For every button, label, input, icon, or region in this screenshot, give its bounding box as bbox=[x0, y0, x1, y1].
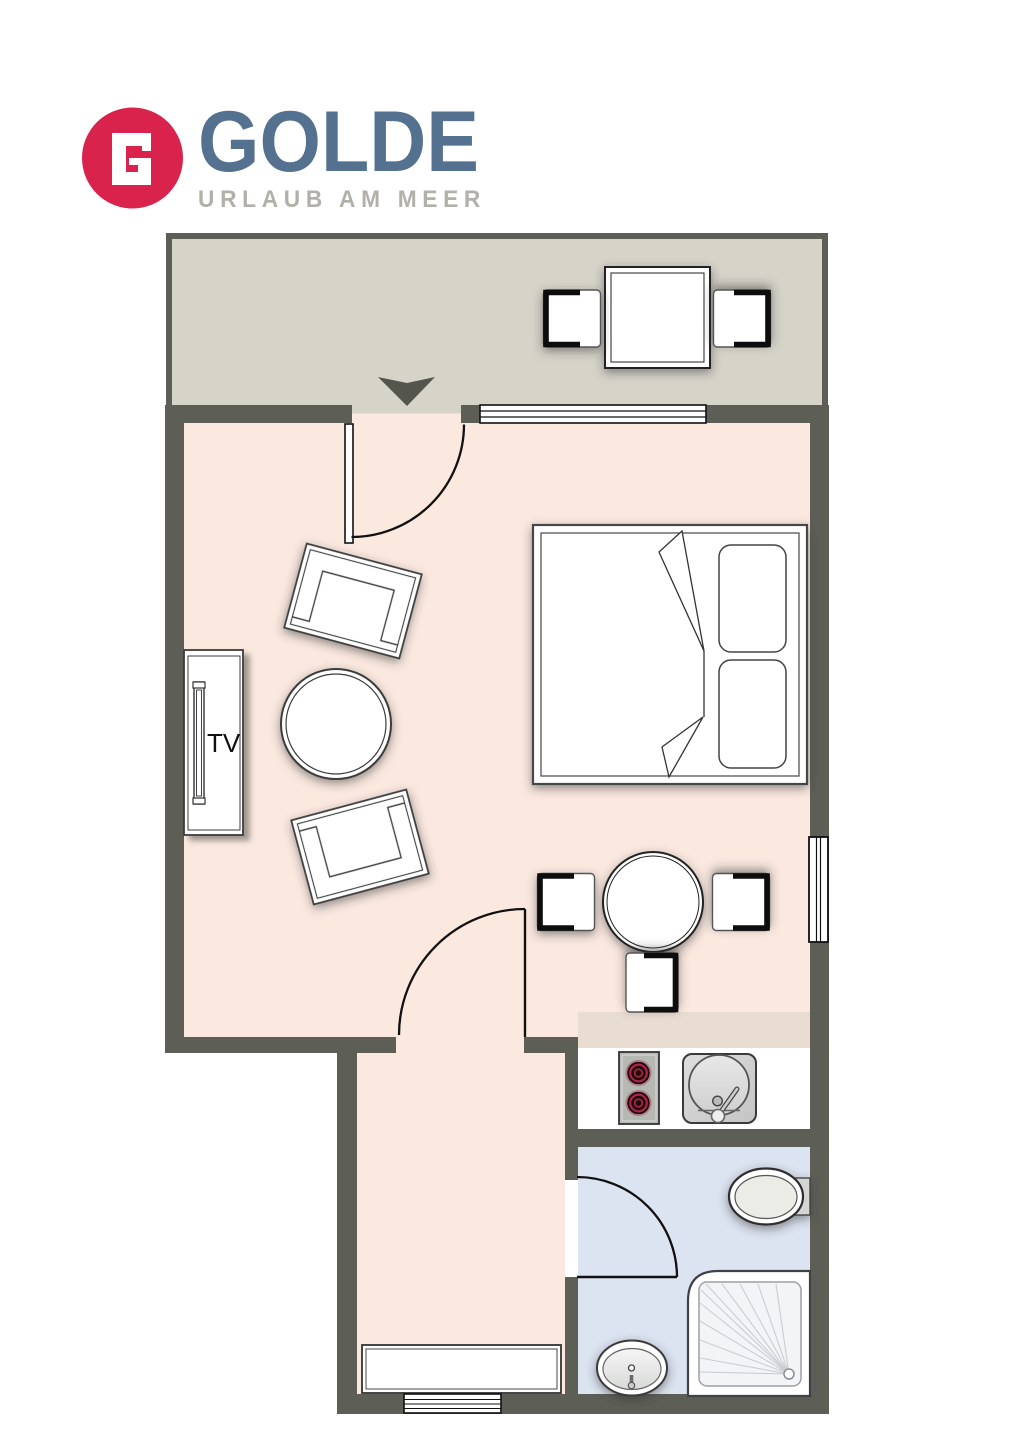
svg-text:URLAUB AM MEER: URLAUB AM MEER bbox=[198, 186, 486, 213]
svg-text:TV: TV bbox=[207, 728, 241, 758]
svg-text:GOLDE: GOLDE bbox=[198, 94, 479, 190]
